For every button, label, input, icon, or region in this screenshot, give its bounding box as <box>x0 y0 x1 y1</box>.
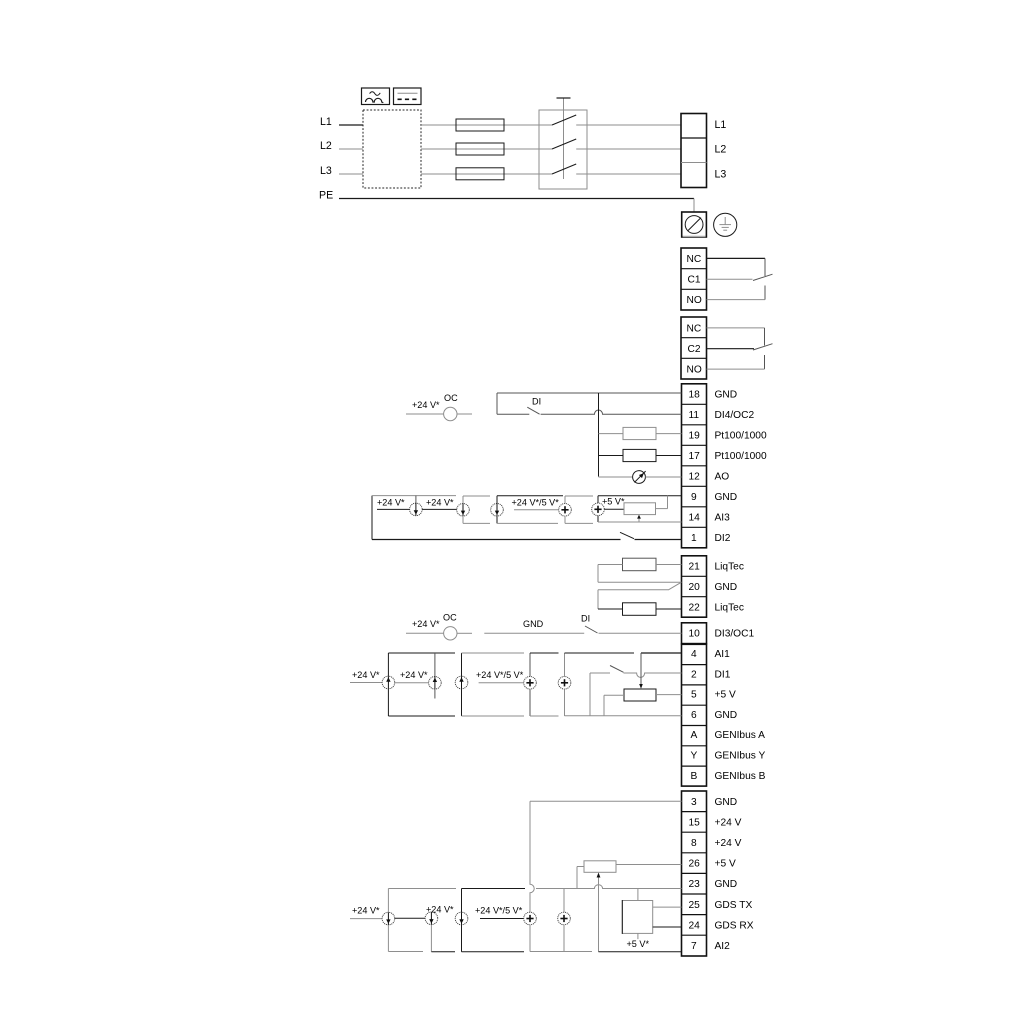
svg-text:19: 19 <box>689 431 701 442</box>
svg-text:OC: OC <box>443 613 457 623</box>
svg-text:18: 18 <box>689 390 701 401</box>
svg-text:6: 6 <box>691 710 697 721</box>
svg-text:+24 V*/5 V*: +24 V*/5 V* <box>476 670 524 680</box>
svg-text:Pt100/1000: Pt100/1000 <box>715 451 767 462</box>
svg-text:OC: OC <box>444 393 458 403</box>
svg-text:GENIbus Y: GENIbus Y <box>715 751 766 762</box>
svg-text:+5 V*: +5 V* <box>627 939 650 949</box>
svg-text:L1: L1 <box>715 119 727 131</box>
svg-text:LiqTec: LiqTec <box>715 603 744 614</box>
svg-text:L3: L3 <box>320 165 332 177</box>
svg-text:11: 11 <box>689 410 700 421</box>
svg-text:4: 4 <box>691 649 697 660</box>
svg-text:15: 15 <box>689 817 701 828</box>
svg-text:DI4/OC2: DI4/OC2 <box>715 410 755 421</box>
svg-text:AI1: AI1 <box>715 649 731 660</box>
svg-text:B: B <box>691 771 698 782</box>
svg-text:+24 V*: +24 V* <box>412 619 440 629</box>
svg-text:GND: GND <box>715 879 738 890</box>
svg-text:C1: C1 <box>688 275 701 286</box>
svg-text:C2: C2 <box>688 344 701 355</box>
svg-text:NC: NC <box>687 324 702 335</box>
svg-text:10: 10 <box>689 629 701 640</box>
svg-text:+24 V*: +24 V* <box>426 905 454 915</box>
svg-text:9: 9 <box>691 492 697 503</box>
svg-text:DI2: DI2 <box>715 533 731 544</box>
svg-text:8: 8 <box>691 838 697 849</box>
svg-text:+24 V*: +24 V* <box>426 498 454 508</box>
svg-text:26: 26 <box>689 859 701 870</box>
svg-text:20: 20 <box>689 582 701 593</box>
svg-text:GND: GND <box>715 390 738 401</box>
svg-text:AO: AO <box>715 472 730 483</box>
svg-text:24: 24 <box>689 920 701 931</box>
svg-text:GND: GND <box>523 619 544 629</box>
svg-text:+5 V: +5 V <box>715 859 736 870</box>
svg-text:12: 12 <box>689 472 701 483</box>
svg-text:LiqTec: LiqTec <box>715 562 744 573</box>
svg-text:DI: DI <box>581 614 590 624</box>
svg-text:DI: DI <box>532 397 541 407</box>
svg-text:AI3: AI3 <box>715 513 731 524</box>
svg-text:21: 21 <box>689 562 701 573</box>
svg-text:Pt100/1000: Pt100/1000 <box>715 431 767 442</box>
svg-text:+5 V*: +5 V* <box>602 497 625 507</box>
svg-text:+24 V*: +24 V* <box>352 670 380 680</box>
svg-text:A: A <box>691 730 698 741</box>
svg-text:3: 3 <box>691 797 697 808</box>
svg-text:GND: GND <box>715 492 738 503</box>
svg-text:NO: NO <box>687 295 702 306</box>
svg-text:AI2: AI2 <box>715 941 731 952</box>
svg-text:GND: GND <box>715 710 738 721</box>
svg-text:GENIbus B: GENIbus B <box>715 771 766 782</box>
svg-text:14: 14 <box>689 513 701 524</box>
svg-text:GND: GND <box>715 582 738 593</box>
svg-text:DI3/OC1: DI3/OC1 <box>715 629 755 640</box>
svg-text:2: 2 <box>691 669 697 680</box>
svg-text:17: 17 <box>689 451 701 462</box>
svg-text:+24 V: +24 V <box>715 838 742 849</box>
svg-text:+24 V*: +24 V* <box>400 670 428 680</box>
svg-text:GDS RX: GDS RX <box>715 920 754 931</box>
svg-text:+24 V*: +24 V* <box>377 498 405 508</box>
svg-text:7: 7 <box>691 941 697 952</box>
svg-text:+5 V: +5 V <box>715 690 736 701</box>
svg-text:+24 V*: +24 V* <box>352 906 380 916</box>
svg-text:L1: L1 <box>320 116 332 128</box>
svg-text:23: 23 <box>689 879 701 890</box>
svg-text:GND: GND <box>715 797 738 808</box>
svg-text:25: 25 <box>689 900 701 911</box>
svg-text:L2: L2 <box>320 140 332 152</box>
svg-text:Y: Y <box>691 751 698 762</box>
svg-text:22: 22 <box>689 603 701 614</box>
svg-text:NO: NO <box>687 365 702 376</box>
svg-text:+24 V*/5 V*: +24 V*/5 V* <box>475 906 523 916</box>
svg-text:L2: L2 <box>715 144 727 156</box>
svg-text:DI1: DI1 <box>715 669 731 680</box>
svg-text:L3: L3 <box>715 169 727 181</box>
svg-text:+24 V*: +24 V* <box>412 400 440 410</box>
svg-text:NC: NC <box>687 254 702 265</box>
svg-text:5: 5 <box>691 690 697 701</box>
svg-text:+24 V*/5 V*: +24 V*/5 V* <box>512 497 560 507</box>
svg-text:+24 V: +24 V <box>715 817 742 828</box>
svg-text:1: 1 <box>691 533 697 544</box>
svg-text:GDS TX: GDS TX <box>715 900 753 911</box>
svg-text:GENIbus A: GENIbus A <box>715 730 766 741</box>
svg-text:PE: PE <box>319 190 333 202</box>
